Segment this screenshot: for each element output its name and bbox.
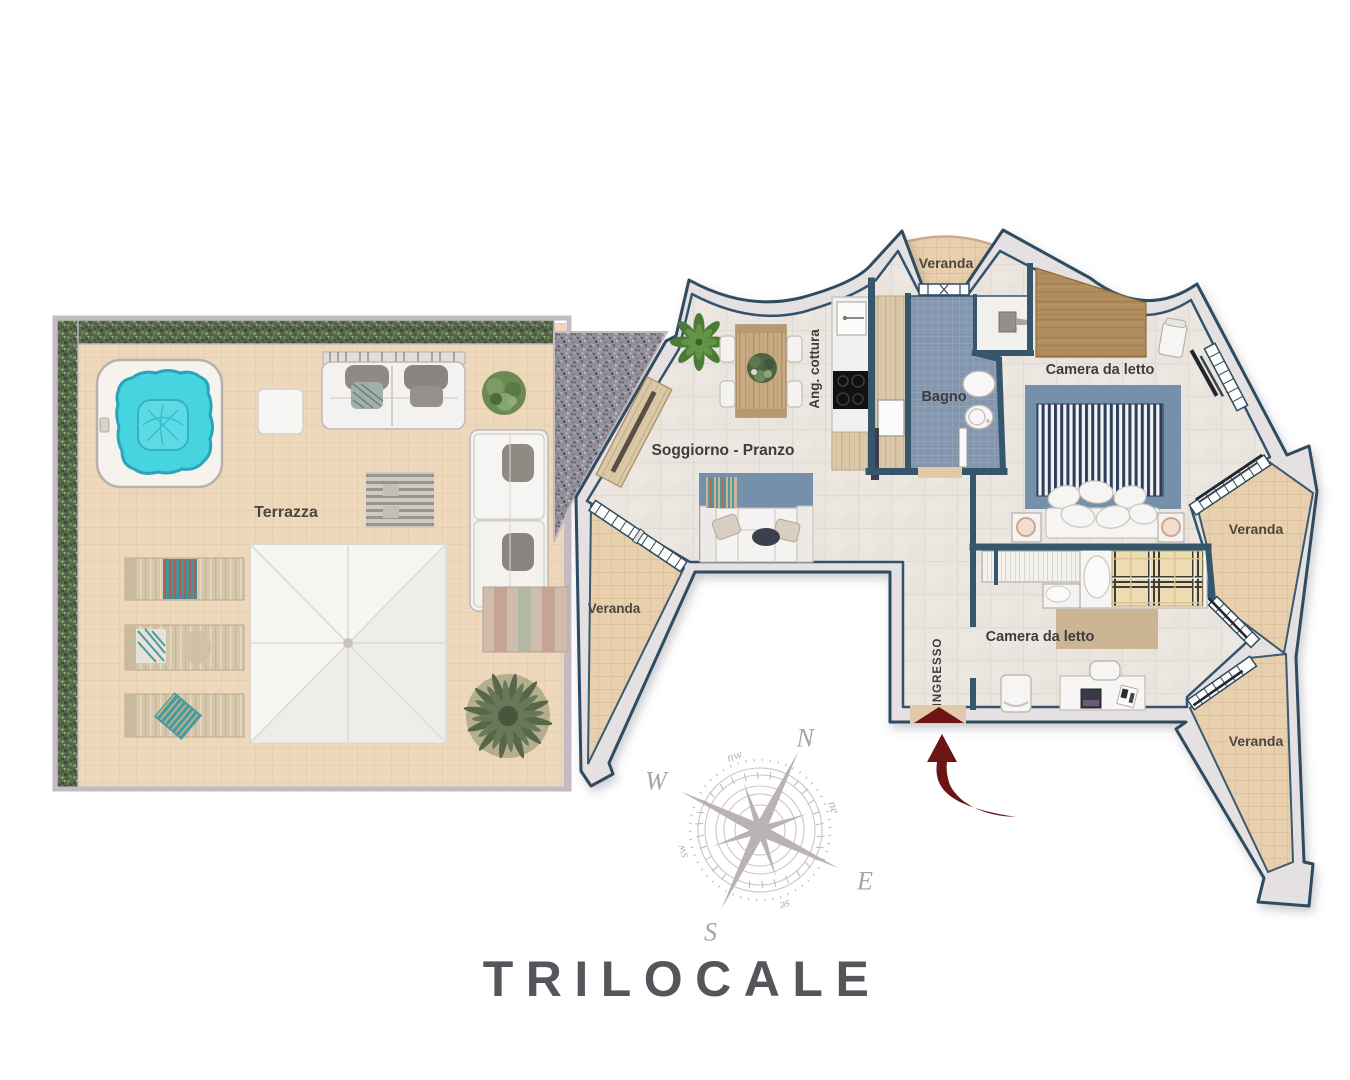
svg-text:Terrazza: Terrazza (254, 504, 318, 521)
svg-text:Bagno: Bagno (921, 389, 966, 405)
svg-text:N: N (795, 723, 815, 752)
svg-text:Camera da letto: Camera da letto (986, 629, 1095, 645)
svg-text:Veranda: Veranda (1229, 733, 1284, 749)
svg-text:Veranda: Veranda (1229, 521, 1284, 537)
svg-text:S: S (704, 918, 717, 947)
svg-text:Camera da letto: Camera da letto (1046, 362, 1155, 378)
svg-text:Veranda: Veranda (588, 601, 641, 616)
svg-text:Ang. cottura: Ang. cottura (807, 329, 822, 409)
svg-text:TRILOCALE: TRILOCALE (483, 951, 882, 1007)
svg-text:Veranda: Veranda (919, 255, 974, 271)
svg-text:INGRESSO: INGRESSO (932, 638, 944, 707)
svg-text:E: E (856, 866, 873, 895)
svg-text:Soggiorno - Pranzo: Soggiorno - Pranzo (652, 442, 795, 459)
svg-text:W: W (645, 766, 669, 795)
